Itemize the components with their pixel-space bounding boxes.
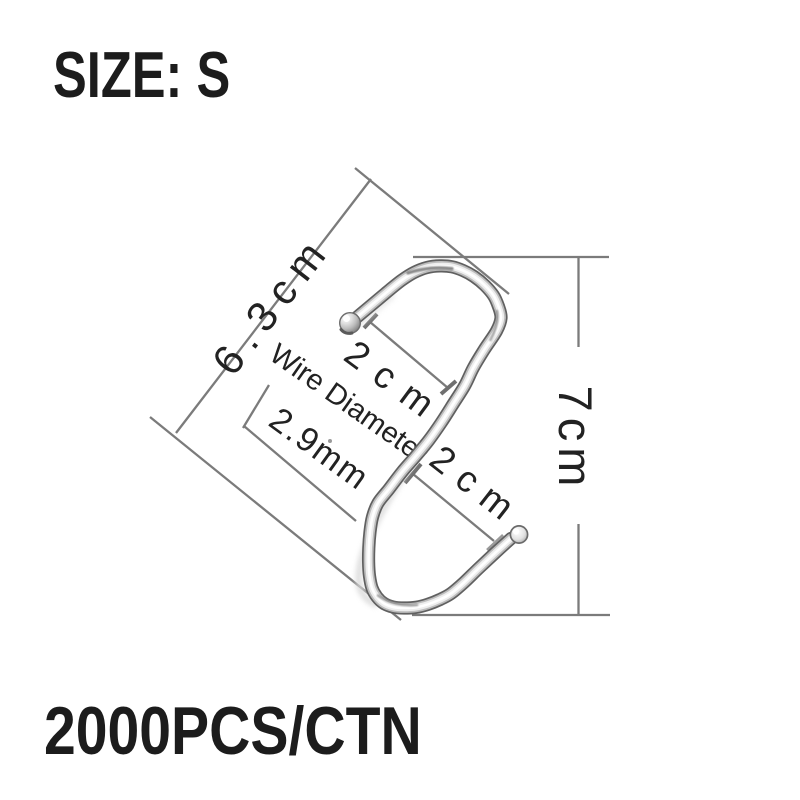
svg-text:2000PCS/CTN: 2000PCS/CTN bbox=[44, 693, 422, 769]
svg-text:SIZE: S: SIZE: S bbox=[53, 39, 230, 112]
svg-text:7cm: 7cm bbox=[549, 386, 602, 493]
